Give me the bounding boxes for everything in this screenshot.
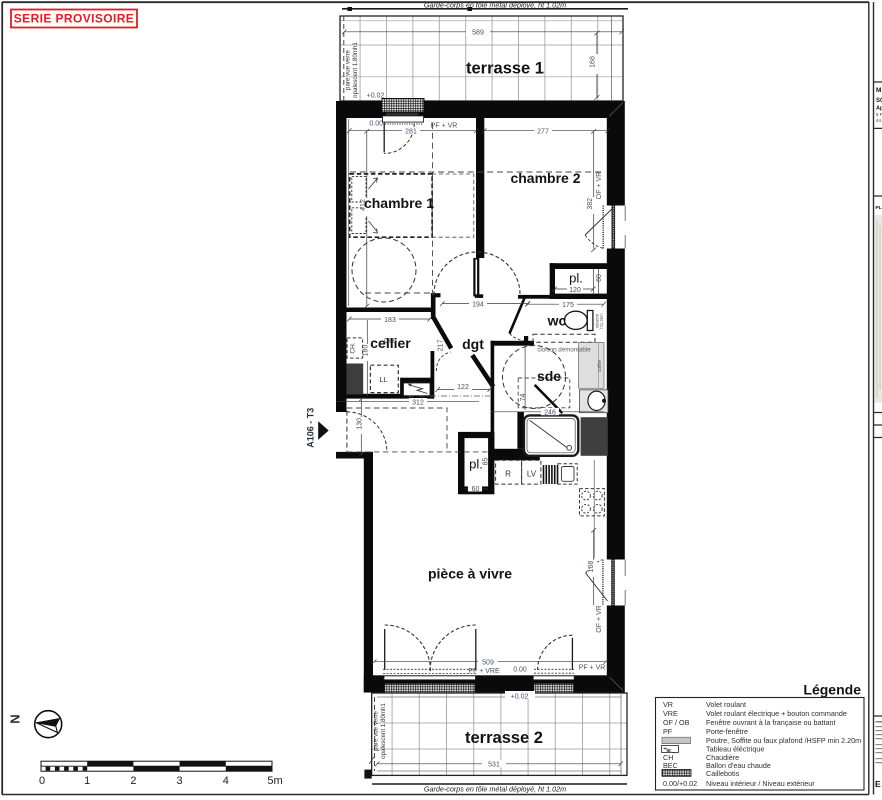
svg-text:PF: PF bbox=[663, 727, 673, 736]
svg-text:2: 2 bbox=[130, 775, 136, 787]
svg-text:Porte-fenêtre: Porte-fenêtre bbox=[706, 727, 748, 736]
svg-text:44: 44 bbox=[876, 118, 881, 123]
svg-text:pare vue verre: pare vue verre bbox=[373, 710, 380, 750]
svg-text:589: 589 bbox=[472, 30, 484, 37]
svg-text:PF + VR: PF + VR bbox=[579, 664, 606, 671]
svg-text:60: 60 bbox=[472, 486, 480, 493]
svg-text:M: M bbox=[876, 87, 881, 94]
svg-text:217: 217 bbox=[438, 340, 445, 352]
svg-text:Ap: Ap bbox=[876, 106, 882, 112]
svg-text:1: 1 bbox=[84, 775, 90, 787]
svg-text:OF / OB: OF / OB bbox=[663, 718, 690, 727]
svg-text:pare vue verre: pare vue verre bbox=[345, 49, 352, 89]
svg-text:277: 277 bbox=[537, 129, 549, 136]
svg-text:terrasse 1: terrasse 1 bbox=[466, 60, 544, 78]
svg-text:opalescent 1.80mh1: opalescent 1.80mh1 bbox=[380, 703, 387, 759]
svg-text:281: 281 bbox=[405, 129, 417, 136]
svg-text:chambre 2: chambre 2 bbox=[510, 170, 580, 186]
svg-text:OF + VR: OF + VR bbox=[596, 172, 603, 199]
svg-text:0: 0 bbox=[39, 775, 45, 787]
svg-text:312: 312 bbox=[412, 400, 424, 407]
svg-text:BEC: BEC bbox=[663, 761, 678, 770]
svg-text:Garde-corps en tôle métal dépl: Garde-corps en tôle métal déployé, ht 1.… bbox=[424, 0, 566, 9]
svg-text:VR: VR bbox=[663, 700, 673, 709]
svg-text:531: 531 bbox=[488, 762, 500, 769]
svg-text:194: 194 bbox=[472, 302, 484, 309]
svg-text:3: 3 bbox=[177, 775, 183, 787]
svg-text:183: 183 bbox=[384, 317, 396, 324]
svg-text:168: 168 bbox=[588, 561, 595, 573]
svg-text:dgt: dgt bbox=[462, 336, 484, 352]
svg-text:LV: LV bbox=[527, 470, 537, 479]
svg-text:SERIE PROVISOIRE: SERIE PROVISOIRE bbox=[14, 12, 134, 26]
svg-text:122: 122 bbox=[457, 384, 469, 391]
svg-text:85: 85 bbox=[482, 458, 489, 466]
svg-text:5m: 5m bbox=[267, 775, 282, 787]
svg-text:Fenêtre ouvrant à la française: Fenêtre ouvrant à la française ou battan… bbox=[706, 718, 835, 727]
svg-text:180: 180 bbox=[362, 345, 369, 357]
svg-text:R: R bbox=[505, 470, 511, 479]
svg-text:sde: sde bbox=[537, 368, 561, 384]
svg-text:Légende: Légende bbox=[803, 682, 861, 698]
svg-text:ht1.35m: ht1.35m bbox=[599, 313, 604, 329]
svg-text:+0.02: +0.02 bbox=[511, 694, 529, 701]
svg-text:5 F: 5 F bbox=[876, 112, 882, 117]
svg-text:382: 382 bbox=[587, 198, 594, 210]
svg-text:OF + VR: OF + VR bbox=[596, 605, 603, 632]
svg-text:coffre: coffre bbox=[597, 360, 603, 372]
svg-text:Niveau intérieur / Niveau exté: Niveau intérieur / Niveau extérieur bbox=[706, 779, 815, 788]
svg-text:cloison démontable: cloison démontable bbox=[537, 347, 591, 354]
svg-text:0.00: 0.00 bbox=[513, 667, 527, 674]
svg-text:Volet roulant électrique + bou: Volet roulant électrique + bouton comman… bbox=[706, 709, 847, 718]
svg-text:4: 4 bbox=[223, 775, 229, 787]
svg-text:CH.: CH. bbox=[350, 342, 357, 353]
svg-text:PF + VRE: PF + VRE bbox=[468, 668, 500, 675]
svg-text:509: 509 bbox=[482, 660, 494, 667]
svg-text:E: E bbox=[875, 779, 881, 789]
svg-text:Caillebotis: Caillebotis bbox=[706, 769, 740, 778]
svg-text:VRE: VRE bbox=[663, 709, 678, 718]
svg-text:246: 246 bbox=[544, 409, 556, 416]
svg-text:0.00: 0.00 bbox=[369, 121, 383, 128]
svg-text:Garde-corps en tôle métal dépl: Garde-corps en tôle métal déployé, ht 1.… bbox=[424, 785, 566, 794]
svg-text:pièce à vivre: pièce à vivre bbox=[428, 566, 512, 582]
svg-text:PLA: PLA bbox=[876, 205, 882, 211]
svg-text:130: 130 bbox=[356, 418, 363, 430]
svg-text:wc: wc bbox=[547, 313, 567, 329]
svg-text:cellier: cellier bbox=[370, 335, 411, 351]
svg-text:N: N bbox=[8, 714, 23, 723]
svg-text:pl.: pl. bbox=[569, 271, 583, 286]
svg-text:120: 120 bbox=[569, 287, 581, 294]
svg-text:LL: LL bbox=[379, 375, 387, 384]
svg-text:168: 168 bbox=[590, 56, 597, 68]
svg-text:terrasse 2: terrasse 2 bbox=[465, 729, 543, 747]
svg-text:60: 60 bbox=[596, 274, 603, 282]
svg-text:A106 - T3: A106 - T3 bbox=[305, 408, 315, 448]
svg-text:74: 74 bbox=[520, 394, 527, 402]
svg-text:Volet roulant: Volet roulant bbox=[706, 700, 746, 709]
svg-text:pl.: pl. bbox=[469, 457, 483, 472]
svg-text:opalescent 1.80mh1: opalescent 1.80mh1 bbox=[352, 42, 359, 98]
svg-text:PF + VR: PF + VR bbox=[431, 122, 458, 129]
svg-text:chambre 1: chambre 1 bbox=[364, 195, 434, 211]
svg-text:0.00/+0.02: 0.00/+0.02 bbox=[663, 779, 697, 788]
svg-text:175: 175 bbox=[562, 302, 574, 309]
svg-text:SO: SO bbox=[876, 98, 882, 104]
